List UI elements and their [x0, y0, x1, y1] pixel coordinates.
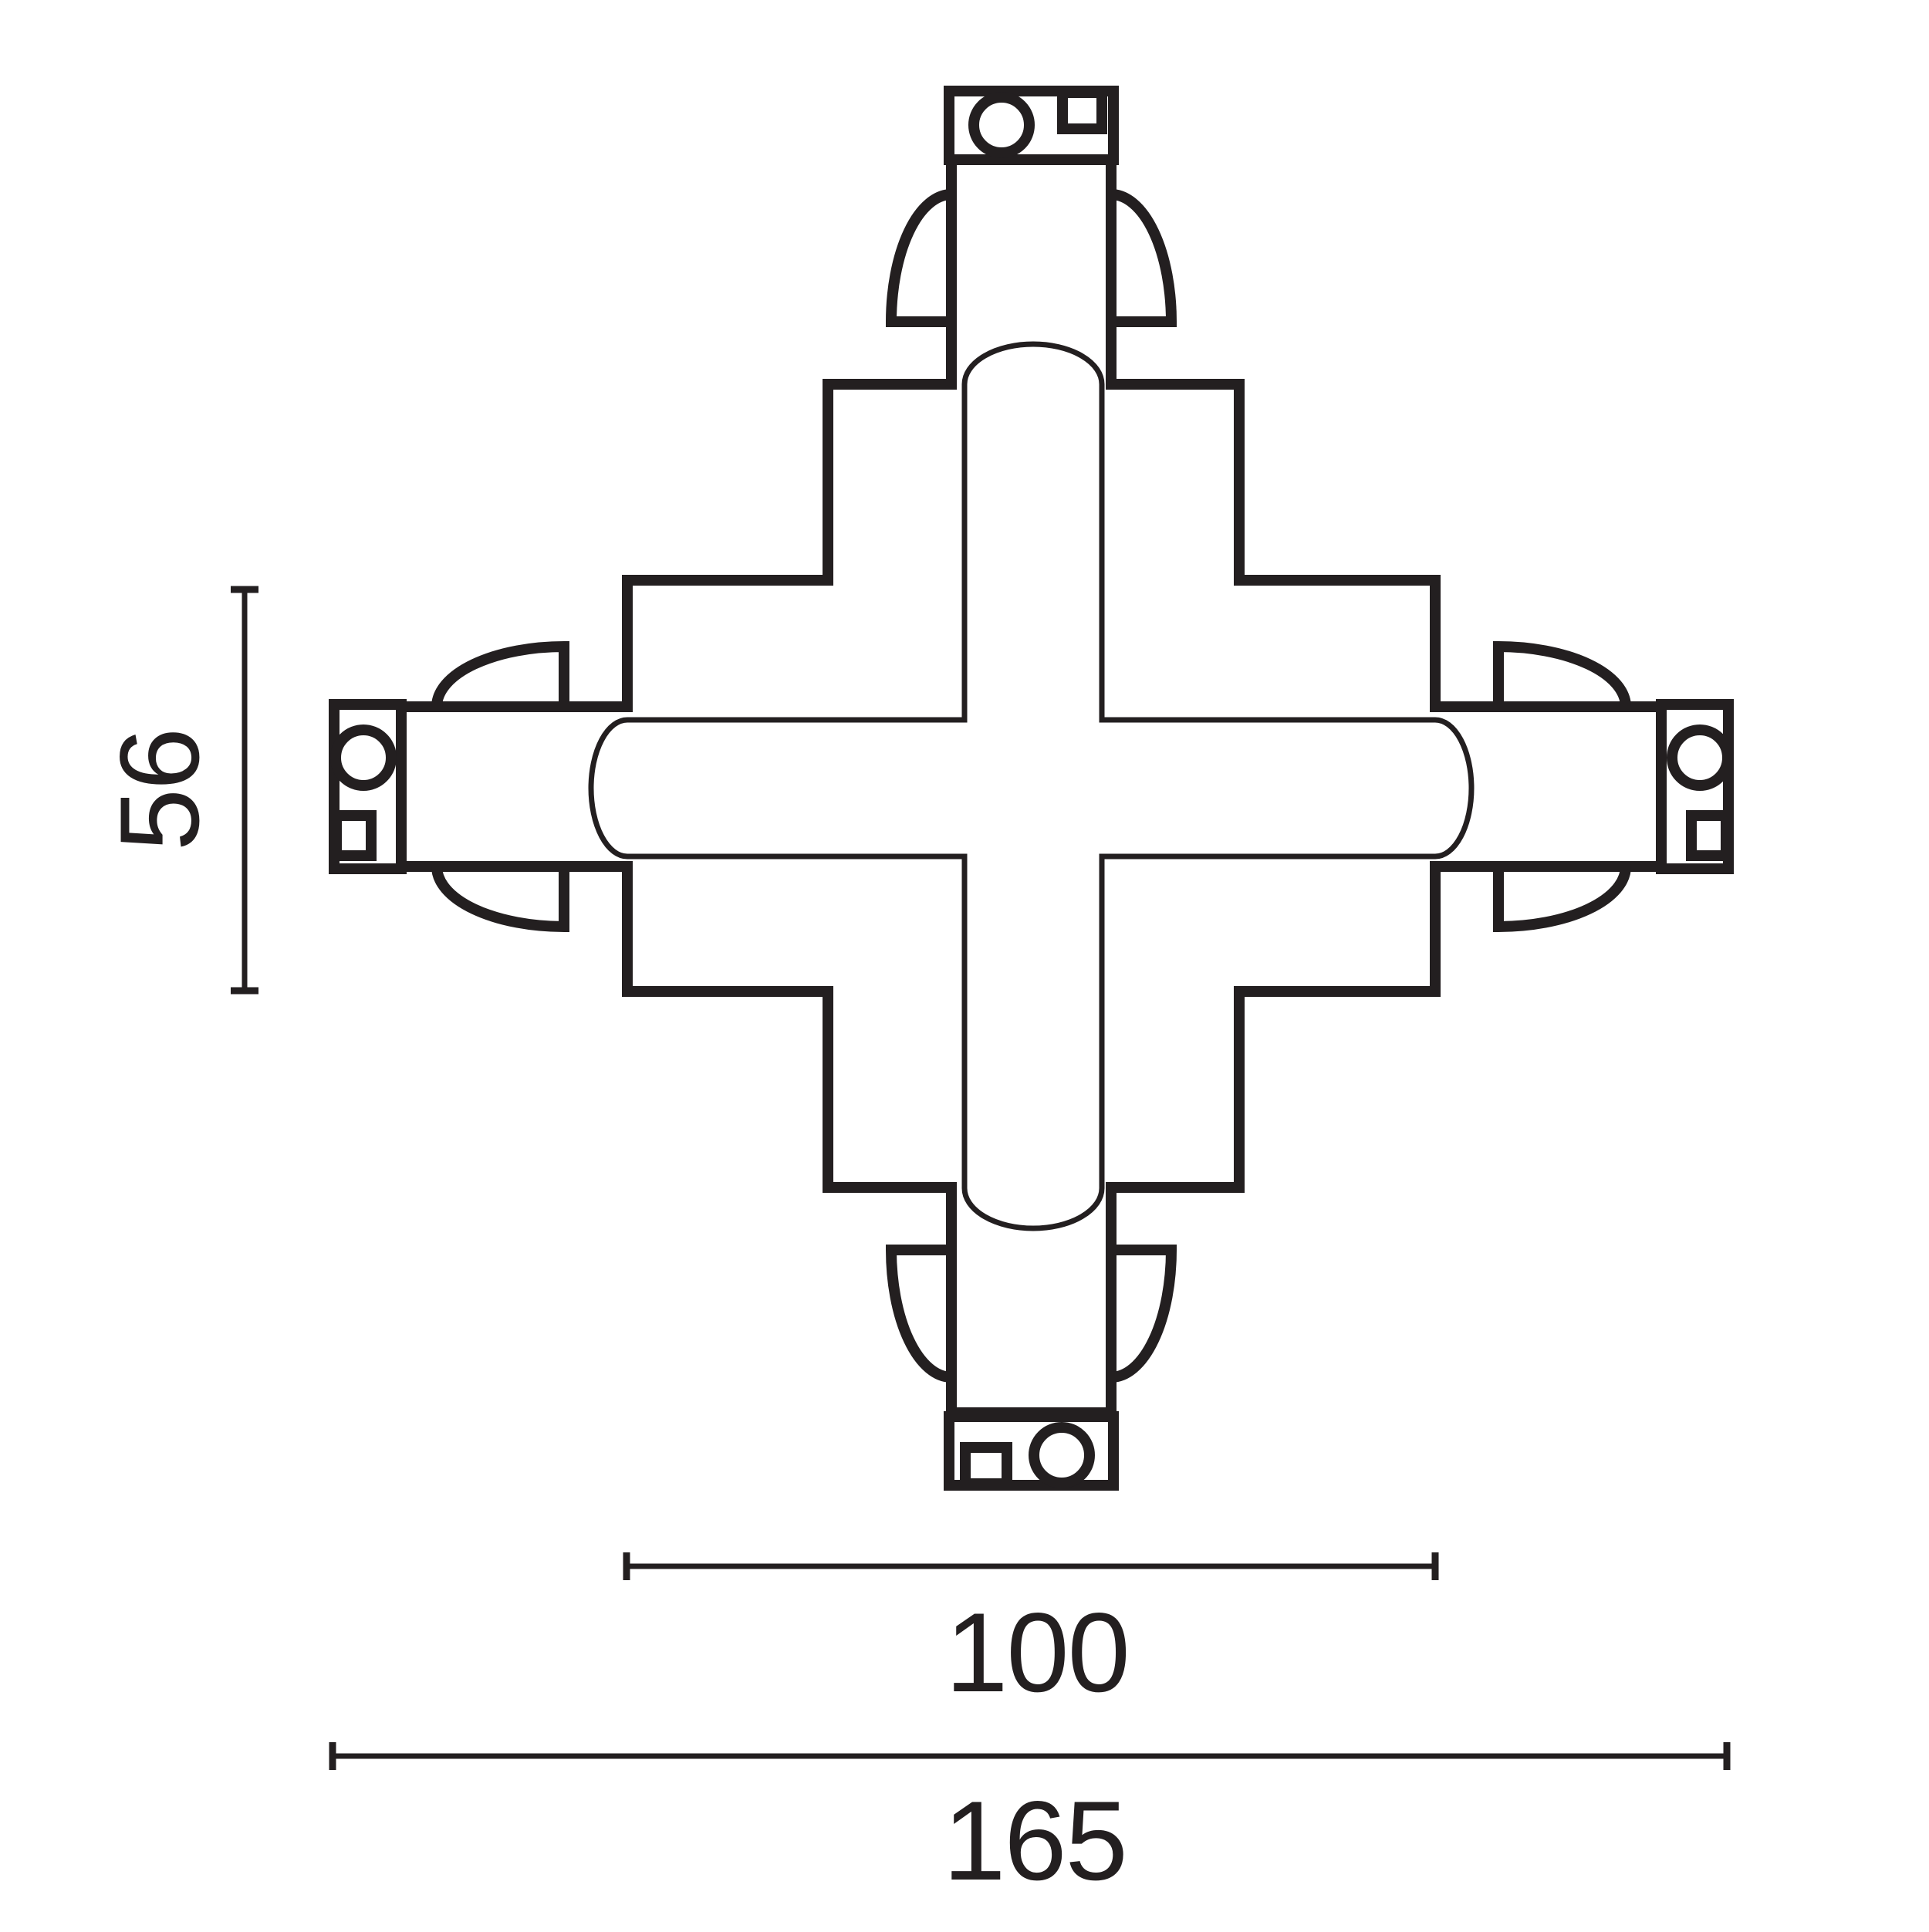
bottom-end-cap — [949, 1417, 1113, 1485]
bottom-end-cap-contact-square — [965, 1447, 1007, 1484]
top-arm-right-wing — [1111, 194, 1171, 322]
left-end-cap-contact-square — [336, 816, 371, 856]
left-end-cap — [334, 704, 401, 869]
right-arm-top-wing — [1498, 647, 1626, 707]
dimension-100: 100 — [627, 1552, 1435, 1715]
top-arm-left-wing — [891, 194, 951, 322]
bottom-end-cap-contact-circle — [1034, 1427, 1089, 1483]
left-end-cap-contact-circle — [336, 730, 391, 785]
drawing-page: 56 100 165 — [0, 0, 1929, 1932]
dimension-56-label: 56 — [96, 729, 222, 851]
top-end-cap — [949, 91, 1113, 160]
top-end-cap-contact-square — [1062, 93, 1102, 129]
right-end-cap-contact-circle — [1672, 730, 1728, 785]
dimension-165-label: 165 — [943, 1778, 1127, 1903]
inner-cross-outline — [591, 344, 1471, 1228]
dimension-56: 56 — [96, 589, 258, 991]
bottom-arm-left-wing — [891, 1250, 951, 1377]
right-end-cap — [1661, 704, 1728, 869]
right-arm-bottom-wing — [1498, 866, 1626, 927]
dimension-165: 165 — [333, 1742, 1727, 1903]
bottom-arm-right-wing — [1111, 1250, 1171, 1377]
left-arm-top-wing — [437, 647, 564, 707]
right-end-cap-contact-square — [1691, 816, 1726, 856]
dimension-100-label: 100 — [945, 1589, 1129, 1715]
x-connector-technical-drawing: 56 100 165 — [0, 0, 1929, 1932]
left-arm-bottom-wing — [437, 866, 564, 927]
top-end-cap-contact-circle — [974, 97, 1029, 153]
